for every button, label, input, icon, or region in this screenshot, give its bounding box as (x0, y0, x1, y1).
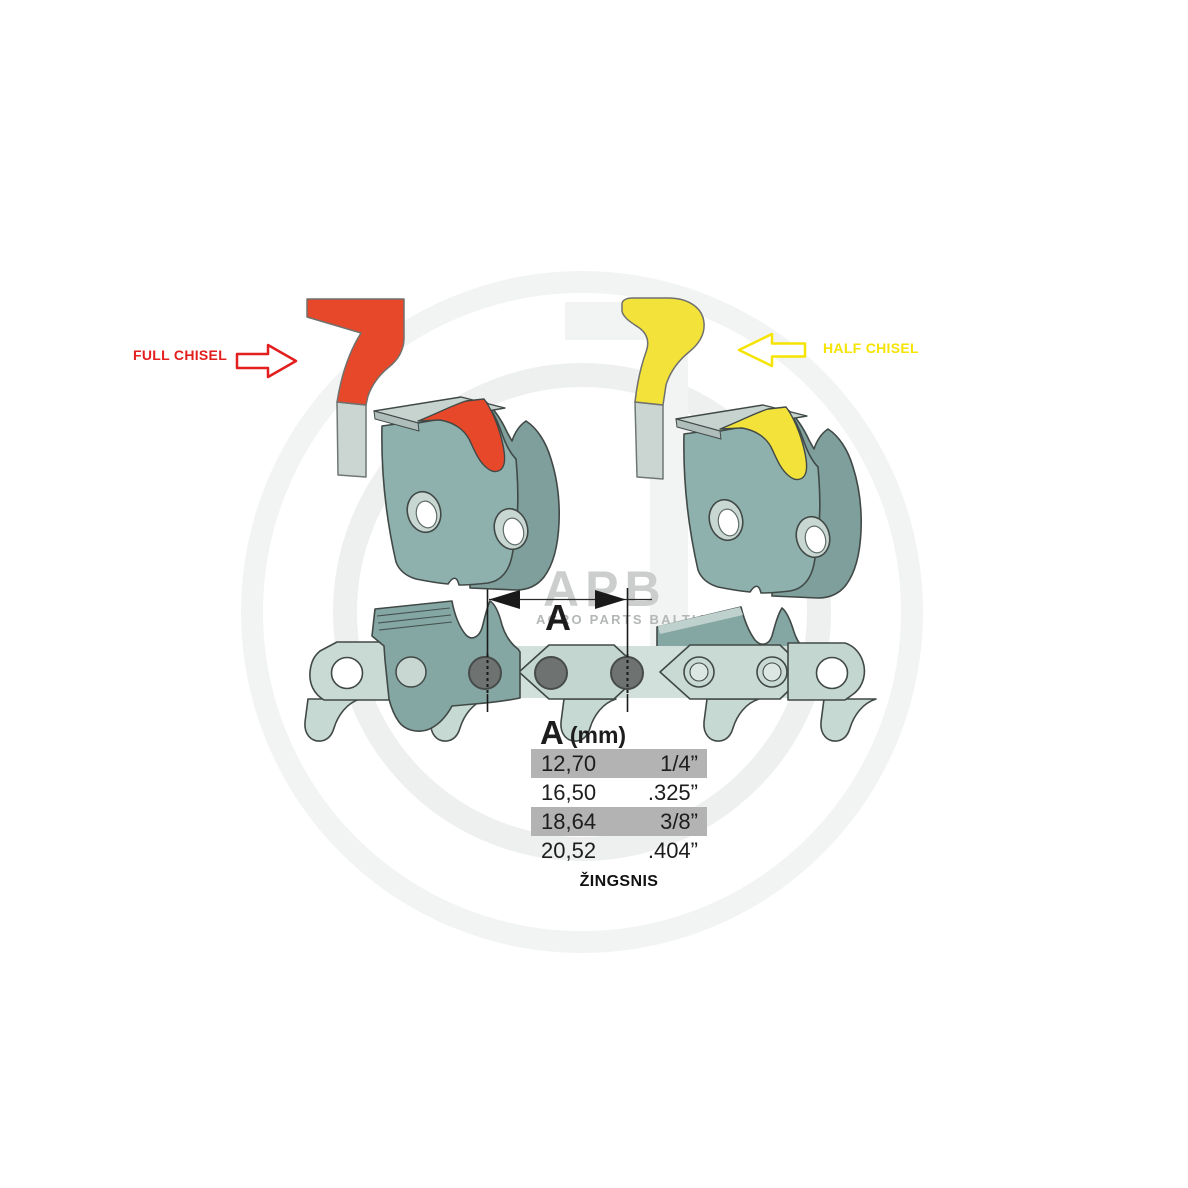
half-chisel-stem (635, 402, 663, 479)
pitch-table-header-unit: (mm) (570, 722, 626, 749)
chainsaw-chain-diagram: APB AGRO PARTS BALTIJA (0, 0, 1188, 1188)
pitch-table-rows: 12,701/4”16,50.325”18,643/8”20,52.404” (531, 749, 707, 865)
rivet (469, 657, 501, 689)
plate-hole (690, 663, 708, 681)
half-chisel-label: HALF CHISEL (823, 340, 919, 356)
plate-hole (332, 658, 363, 689)
full-chisel-arrow-icon (237, 345, 296, 377)
plate-hole (763, 663, 781, 681)
pitch-mm-value: 20,52 (531, 838, 596, 864)
pitch-inch-value: .404” (648, 838, 707, 864)
half-chisel-cutter-link (676, 405, 861, 598)
pitch-row: 12,701/4” (531, 749, 707, 778)
pitch-table: A (mm) 12,701/4”16,50.325”18,643/8”20,52… (531, 709, 707, 891)
diagram-artwork: APB AGRO PARTS BALTIJA (0, 0, 1188, 1188)
drive-link-tooth (821, 699, 876, 741)
pitch-dimension-label: A (545, 597, 571, 639)
pitch-mm-value: 18,64 (531, 809, 596, 835)
pitch-table-header-symbol: A (540, 716, 564, 749)
pitch-table-header: A (mm) (531, 709, 707, 749)
pitch-row: 18,643/8” (531, 807, 707, 836)
drive-link-tooth (704, 699, 759, 741)
plate-hole (396, 657, 426, 687)
pitch-mm-value: 12,70 (531, 751, 596, 777)
pitch-mm-value: 16,50 (531, 780, 596, 806)
full-chisel-stem (337, 402, 366, 477)
pitch-inch-value: 1/4” (660, 751, 707, 777)
pitch-caption: ŽINGSNIS (531, 873, 707, 891)
full-chisel-profile (307, 299, 404, 405)
pitch-row: 20,52.404” (531, 836, 707, 865)
pitch-inch-value: 3/8” (660, 809, 707, 835)
rivet (535, 657, 567, 689)
full-chisel-cutter-link (374, 397, 559, 590)
pitch-row: 16,50.325” (531, 778, 707, 807)
plate-hole (817, 658, 848, 689)
full-chisel-label: FULL CHISEL (133, 347, 227, 363)
pitch-inch-value: .325” (648, 780, 707, 806)
